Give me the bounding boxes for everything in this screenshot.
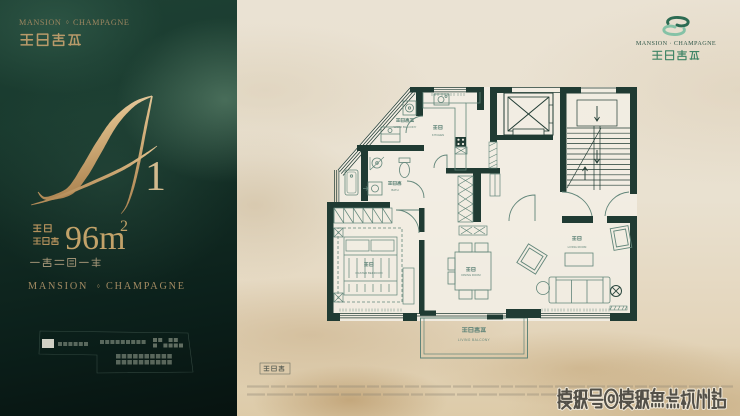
svg-text:KITCHEN: KITCHEN [432,133,444,137]
svg-text:MANSION · CHAMPAGNE: MANSION · CHAMPAGNE [636,40,716,47]
svg-text:MASTER BEDROOM: MASTER BEDROOM [356,271,384,275]
svg-text:BATH: BATH [391,188,398,192]
svg-text:LIVING BALCONY: LIVING BALCONY [458,338,491,342]
svg-text:DINING ROOM: DINING ROOM [461,273,481,277]
svg-text:LIVING ROOM: LIVING ROOM [568,245,587,249]
